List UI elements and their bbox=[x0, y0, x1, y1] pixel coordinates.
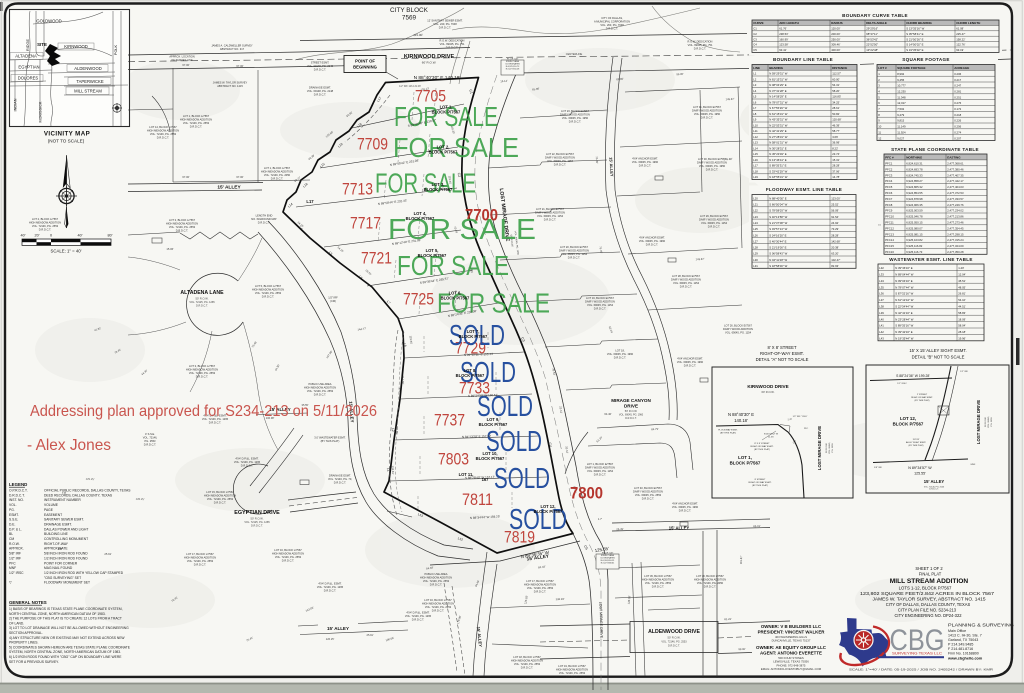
svg-text:(CM): (CM) bbox=[330, 299, 336, 303]
svg-text:RIDGE: RIDGE bbox=[26, 39, 30, 51]
svg-text:BLOCK P/7567: BLOCK P/7567 bbox=[429, 150, 458, 155]
svg-text:11.35': 11.35' bbox=[768, 437, 774, 439]
svg-text:SHEET 1 OF 2: SHEET 1 OF 2 bbox=[915, 566, 943, 571]
svg-text:2,477,213.86: 2,477,213.86 bbox=[947, 215, 964, 219]
svg-text:VOL.: VOL. bbox=[9, 503, 17, 507]
svg-text:LOT 31, BLOCK E/7567: LOT 31, BLOCK E/7567 bbox=[693, 105, 721, 109]
svg-text:S 88°24'36" W 199.28': S 88°24'36" W 199.28' bbox=[896, 374, 930, 378]
svg-text:PFC10: PFC10 bbox=[885, 215, 894, 219]
svg-text:PFC14: PFC14 bbox=[885, 238, 894, 242]
svg-text:11,149: 11,149 bbox=[897, 125, 906, 129]
svg-text:50' R.O.W.: 50' R.O.W. bbox=[668, 636, 681, 640]
svg-text:OWNER: V B BUILDERS LLC: OWNER: V B BUILDERS LLC bbox=[761, 624, 822, 629]
svg-text:HIGH MEADOW ADDITION: HIGH MEADOW ADDITION bbox=[261, 169, 293, 173]
svg-text:CENTERLINE: CENTERLINE bbox=[566, 52, 583, 56]
svg-text:BUILDING LINE: BUILDING LINE bbox=[44, 532, 69, 536]
svg-text:93.41': 93.41' bbox=[779, 48, 787, 52]
svg-text:VOL. 69045, PG. 1154: VOL. 69045, PG. 1154 bbox=[673, 281, 700, 285]
svg-text:LOT 16, BLOCK L/7567: LOT 16, BLOCK L/7567 bbox=[274, 548, 302, 552]
svg-text:VOLUME: VOLUME bbox=[44, 503, 59, 507]
svg-text:DALLAS POWER AND LIGHT: DALLAS POWER AND LIGHT bbox=[44, 527, 88, 531]
svg-text:L19: L19 bbox=[753, 175, 758, 179]
svg-text:DEED RECORDS, DALLAS COUNTY, T: DEED RECORDS, DALLAS COUNTY, TEXAS bbox=[44, 493, 113, 497]
svg-text:25.52': 25.52' bbox=[831, 203, 839, 207]
svg-text:125.55': 125.55' bbox=[914, 472, 926, 476]
svg-text:D.R.D.C.T.: D.R.D.C.T. bbox=[625, 417, 637, 420]
svg-text:AGENT: ANTONIO EVERETTE: AGENT: ANTONIO EVERETTE bbox=[760, 651, 822, 656]
svg-text:142.68': 142.68' bbox=[831, 239, 841, 243]
svg-text:CM: CM bbox=[9, 537, 14, 541]
svg-text:S 13°35'16" W: S 13°35'16" W bbox=[906, 27, 924, 31]
svg-text:58.77': 58.77' bbox=[832, 129, 840, 133]
svg-text:7800: 7800 bbox=[570, 484, 603, 503]
svg-text:2,477,442.17: 2,477,442.17 bbox=[947, 179, 964, 183]
svg-text:LOT 12,: LOT 12, bbox=[900, 416, 916, 421]
svg-text:F 214.481.8716: F 214.481.8716 bbox=[948, 647, 973, 651]
svg-text:MAG NAIL FOUND: MAG NAIL FOUND bbox=[44, 566, 73, 570]
svg-text:HIGH MEADOW ADDITION: HIGH MEADOW ADDITION bbox=[556, 667, 588, 671]
svg-text:VOL. 72146, PG. 2553: VOL. 72146, PG. 2553 bbox=[645, 581, 672, 585]
svg-text:D.R.D.C.T.: D.R.D.C.T. bbox=[176, 228, 189, 232]
svg-text:ALTADENA: ALTADENA bbox=[15, 54, 37, 59]
svg-text:99.00': 99.00' bbox=[738, 647, 746, 651]
svg-text:ALTADENA LANE: ALTADENA LANE bbox=[180, 290, 224, 296]
svg-text:LINE: LINE bbox=[753, 66, 760, 70]
svg-text:www.cbghello.com: www.cbghello.com bbox=[947, 657, 983, 661]
svg-text:OF SURVEY LINE: OF SURVEY LINE bbox=[171, 58, 193, 62]
svg-text:8.22': 8.22' bbox=[832, 146, 838, 150]
svg-text:D.R.D.C.T.: D.R.D.C.T. bbox=[334, 481, 347, 485]
svg-text:D.E.: D.E. bbox=[9, 522, 15, 526]
svg-text:D.R.D.C.T.: D.R.D.C.T. bbox=[554, 162, 567, 166]
svg-text:BLOCK P/7567: BLOCK P/7567 bbox=[534, 509, 563, 514]
svg-text:LOT 3, BLOCK L/7567: LOT 3, BLOCK L/7567 bbox=[169, 218, 196, 222]
svg-text:58.20': 58.20' bbox=[832, 89, 840, 93]
svg-text:PFC11: PFC11 bbox=[885, 221, 894, 225]
svg-text:D.R.D.C.T.: D.R.D.C.T. bbox=[652, 584, 665, 588]
svg-text:85.01': 85.01' bbox=[753, 524, 761, 528]
svg-text:PFC: PFC bbox=[9, 561, 16, 565]
svg-text:DRAINAGE ESMT.: DRAINAGE ESMT. bbox=[44, 522, 72, 526]
svg-text:D.R.D.C.T.: D.R.D.C.T. bbox=[679, 509, 692, 513]
svg-text:VOL. 72146, PG. 1265: VOL. 72146, PG. 1265 bbox=[234, 460, 261, 464]
svg-text:123,802 SQUARE FEET/2.842 ACRE: 123,802 SQUARE FEET/2.842 ACRES IN BLOCK… bbox=[860, 591, 995, 596]
svg-text:D.R.D.C.T.: D.R.D.C.T. bbox=[594, 472, 607, 476]
svg-text:25.91': 25.91' bbox=[104, 552, 112, 556]
svg-text:9,027: 9,027 bbox=[897, 136, 904, 140]
svg-text:L6: L6 bbox=[753, 100, 757, 104]
svg-text:L34: L34 bbox=[879, 279, 884, 283]
svg-text:APPROX.: APPROX. bbox=[9, 547, 24, 551]
svg-text:VOL. 72146,: VOL. 72146, bbox=[143, 435, 158, 439]
svg-text:60' R.O.W.: 60' R.O.W. bbox=[762, 390, 775, 394]
svg-text:2,477,407.35: 2,477,407.35 bbox=[947, 173, 964, 177]
svg-text:HIGH MEADOW ADDITION: HIGH MEADOW ADDITION bbox=[420, 575, 452, 579]
svg-text:L17: L17 bbox=[306, 199, 314, 204]
svg-text:6,924,865.32: 6,924,865.32 bbox=[906, 185, 923, 189]
svg-text:2,477,368.61: 2,477,368.61 bbox=[947, 162, 964, 166]
svg-text:CITY OF DALLAS, DALLAS COUNTY,: CITY OF DALLAS, DALLAS COUNTY, TEXAS bbox=[886, 602, 971, 607]
svg-text:BLOCK P/7567: BLOCK P/7567 bbox=[479, 422, 508, 427]
svg-text:140.18': 140.18' bbox=[734, 418, 748, 423]
svg-text:29°29'16": 29°29'16" bbox=[866, 27, 878, 31]
svg-text:2,477,249.76: 2,477,249.76 bbox=[947, 203, 964, 207]
svg-text:D.R.D.C.T.: D.R.D.C.T. bbox=[544, 217, 557, 221]
svg-text:L2: L2 bbox=[391, 428, 395, 432]
svg-text:DAIRY WOOD ADDITION: DAIRY WOOD ADDITION bbox=[585, 465, 615, 469]
svg-text:DISTANCE: DISTANCE bbox=[832, 66, 847, 70]
svg-text:LOT 1, BLOCK L/7567: LOT 1, BLOCK L/7567 bbox=[264, 166, 291, 170]
svg-text:S 40°13'58" W: S 40°13'58" W bbox=[769, 215, 787, 219]
svg-text:EASEMENT: EASEMENT bbox=[44, 513, 62, 517]
svg-text:6,925,103.82: 6,925,103.82 bbox=[906, 238, 923, 242]
svg-text:4'X4' D.P.&L. ESMT.: 4'X4' D.P.&L. ESMT. bbox=[318, 582, 342, 586]
svg-text:160.99': 160.99' bbox=[779, 37, 789, 41]
svg-text:DRAINAGE ESMT.: DRAINAGE ESMT. bbox=[309, 86, 331, 90]
svg-text:225.47': 225.47' bbox=[956, 32, 966, 36]
svg-text:0.274: 0.274 bbox=[954, 130, 961, 134]
svg-text:7717: 7717 bbox=[350, 214, 381, 233]
svg-text:DRAINAGE ESMT.: DRAINAGE ESMT. bbox=[329, 474, 351, 478]
svg-text:N 78°07'44" W: N 78°07'44" W bbox=[895, 285, 914, 289]
svg-text:VOL. 69045, PG. 1960: VOL. 69045, PG. 1960 bbox=[632, 160, 659, 164]
svg-text:11,348: 11,348 bbox=[897, 95, 906, 99]
svg-text:HIGH MEADOW ADDITION: HIGH MEADOW ADDITION bbox=[147, 128, 179, 132]
svg-text:ABSTRACT NO. 1415: ABSTRACT NO. 1415 bbox=[217, 84, 243, 88]
svg-text:N 42°41'16" E: N 42°41'16" E bbox=[895, 311, 913, 315]
svg-text:HIGH MEADOW ADDITION: HIGH MEADOW ADDITION bbox=[204, 493, 236, 497]
svg-text:LOT 15, BLOCK L/7567: LOT 15, BLOCK L/7567 bbox=[206, 490, 234, 494]
svg-text:FINAL PLAT: FINAL PLAT bbox=[919, 572, 942, 577]
svg-text:D.R.D.C.T.: D.R.D.C.T. bbox=[439, 26, 452, 30]
svg-text:119.85': 119.85' bbox=[409, 335, 414, 344]
svg-text:1/2" IRF: 1/2" IRF bbox=[328, 295, 338, 299]
svg-text:11: 11 bbox=[878, 130, 881, 134]
svg-text:PRESIDENT: VINCENT WALKER: PRESIDENT: VINCENT WALKER bbox=[758, 630, 826, 635]
svg-text:D.R.D.C.T.: D.R.D.C.T. bbox=[209, 421, 222, 425]
svg-text:D.R.D.C.T.: D.R.D.C.T. bbox=[446, 46, 459, 50]
svg-text:6,924,610.31: 6,924,610.31 bbox=[906, 162, 923, 166]
svg-text:40': 40' bbox=[21, 234, 26, 238]
svg-text:200.00': 200.00' bbox=[831, 32, 841, 36]
svg-text:PG.: PG. bbox=[9, 508, 15, 512]
svg-text:250.00': 250.00' bbox=[831, 37, 841, 41]
svg-text:D.R.D.C.T.: D.R.D.C.T. bbox=[684, 364, 697, 368]
svg-text:PUBLIC USE AREA: PUBLIC USE AREA bbox=[424, 572, 447, 576]
svg-text:D.R.D.C.T.: D.R.D.C.T. bbox=[196, 305, 208, 308]
svg-text:LOT 28, BLOCK E/7567: LOT 28, BLOCK E/7567 bbox=[672, 274, 700, 278]
svg-text:MNF: MNF bbox=[9, 566, 16, 570]
svg-text:EGYPTIAN DRIVE: EGYPTIAN DRIVE bbox=[234, 510, 280, 516]
svg-text:VOL. 69045, PG. 1154: VOL. 69045, PG. 1154 bbox=[561, 252, 588, 256]
svg-text:L11: L11 bbox=[753, 129, 758, 133]
svg-text:ALDENWOOD: ALDENWOOD bbox=[74, 66, 101, 71]
svg-text:1.7': 1.7' bbox=[598, 517, 603, 521]
svg-text:LOT 23, BLOCK E/7567: LOT 23, BLOCK E/7567 bbox=[561, 109, 589, 113]
svg-text:VOL. 72146, PG. 2553: VOL. 72146, PG. 2553 bbox=[183, 121, 210, 125]
svg-text:C1: C1 bbox=[753, 27, 757, 31]
svg-text:LOT 1, BLOCK E/7567: LOT 1, BLOCK E/7567 bbox=[587, 462, 614, 466]
svg-text:LENGTH END: LENGTH END bbox=[256, 214, 273, 218]
svg-text:JAMES A. CALDWELLER SURVEY: JAMES A. CALDWELLER SURVEY bbox=[211, 43, 253, 47]
svg-text:D.R.D.C.T.: D.R.D.C.T. bbox=[314, 68, 327, 72]
svg-text:N 58°01'31" W: N 58°01'31" W bbox=[769, 141, 788, 145]
svg-text:1) BASIS OF BEARINGS IS TEXAS: 1) BASIS OF BEARINGS IS TEXAS STATE PLAN… bbox=[9, 607, 123, 611]
svg-text:PFC15: PFC15 bbox=[885, 244, 894, 248]
svg-text:PFC12: PFC12 bbox=[885, 226, 894, 230]
svg-text:L31: L31 bbox=[753, 264, 758, 268]
svg-text:L1: L1 bbox=[753, 72, 757, 76]
svg-text:JAMES W. TAYLOR SURVEY: JAMES W. TAYLOR SURVEY bbox=[213, 80, 248, 84]
svg-text:LOT 45, BLOCK L/7567: LOT 45, BLOCK L/7567 bbox=[644, 574, 672, 578]
svg-text:LOT 18,: LOT 18, bbox=[615, 349, 625, 353]
svg-text:HIGH MEADOW ADDITION: HIGH MEADOW ADDITION bbox=[422, 601, 454, 605]
svg-text:10: 10 bbox=[878, 125, 882, 129]
svg-text:1/2" IRF "CBG": 1/2" IRF "CBG" bbox=[793, 416, 808, 418]
svg-text:SANITARY SEWER ESMT.: SANITARY SEWER ESMT. bbox=[44, 518, 84, 522]
svg-text:N 88°40'30" E: N 88°40'30" E bbox=[769, 196, 787, 200]
svg-text:ARC LENGTH: ARC LENGTH bbox=[779, 21, 799, 25]
svg-text:L15: L15 bbox=[753, 152, 758, 156]
svg-text:D.R.D.C.T.: D.R.D.C.T. bbox=[282, 558, 295, 562]
svg-text:S 05°58'41" E: S 05°58'41" E bbox=[906, 32, 923, 36]
svg-text:NORTHING: NORTHING bbox=[906, 156, 923, 160]
svg-text:PG. 1950: PG. 1950 bbox=[991, 417, 993, 427]
svg-text:S 40°30'44" E: S 40°30'44" E bbox=[769, 239, 786, 243]
svg-text:81.22': 81.22' bbox=[724, 617, 732, 621]
svg-text:S 89°35'31" E: S 89°35'31" E bbox=[769, 164, 786, 168]
svg-text:5/8 INCH IRON ROD FOUND: 5/8 INCH IRON ROD FOUND bbox=[44, 552, 88, 556]
svg-text:50' R.O.W.: 50' R.O.W. bbox=[625, 409, 638, 413]
svg-text:R.O.W.: R.O.W. bbox=[9, 542, 20, 546]
svg-text:6,924,858.27: 6,924,858.27 bbox=[906, 179, 923, 183]
svg-text:L12: L12 bbox=[753, 135, 758, 139]
svg-text:DOLORES: DOLORES bbox=[18, 76, 39, 81]
svg-text:DAIRY WOOD ADDITION: DAIRY WOOD ADDITION bbox=[633, 489, 663, 493]
svg-text:D.R.D.C.T.: D.R.D.C.T. bbox=[694, 47, 707, 51]
svg-text:S 78°58'03" W: S 78°58'03" W bbox=[769, 209, 787, 213]
svg-text:2,477,350.28: 2,477,350.28 bbox=[947, 250, 964, 254]
svg-text:STREET ESMT.: STREET ESMT. bbox=[311, 61, 330, 65]
svg-text:OWNER: AE EQUITY GROUP LLC: OWNER: AE EQUITY GROUP LLC bbox=[756, 645, 827, 650]
svg-text:15.06': 15.06' bbox=[166, 247, 174, 251]
svg-text:C4: C4 bbox=[548, 442, 553, 447]
svg-text:14.78': 14.78' bbox=[832, 175, 840, 179]
svg-text:115.87': 115.87' bbox=[739, 555, 743, 564]
svg-text:N 19°35'44" W: N 19°35'44" W bbox=[895, 337, 914, 341]
svg-text:OFFICIAL PUBLIC RECORDS, DALLA: OFFICIAL PUBLIC RECORDS, DALLAS COUNTY, … bbox=[44, 489, 131, 493]
svg-text:158.22': 158.22' bbox=[956, 37, 966, 41]
svg-text:ALLEY SIGHT ESMT.: ALLEY SIGHT ESMT. bbox=[906, 441, 926, 444]
svg-text:28.28': 28.28' bbox=[831, 233, 839, 237]
svg-text:67.00': 67.00' bbox=[182, 63, 190, 67]
svg-text:LOT 18, BLOCK L/7567: LOT 18, BLOCK L/7567 bbox=[513, 655, 541, 659]
svg-text:50' R.O.W.: 50' R.O.W. bbox=[826, 443, 828, 453]
svg-text:67.00': 67.00' bbox=[236, 175, 244, 179]
svg-text:N 18°55'31" W: N 18°55'31" W bbox=[769, 175, 788, 179]
svg-text:C4: C4 bbox=[753, 43, 757, 47]
svg-text:S 22°34'44" W: S 22°34'44" W bbox=[895, 305, 913, 309]
svg-text:LOT 20, BLOCK E/7567: LOT 20, BLOCK E/7567 bbox=[560, 245, 588, 249]
svg-text:7803: 7803 bbox=[438, 450, 469, 469]
svg-text:D.R.D.C.T.: D.R.D.C.T. bbox=[258, 221, 271, 225]
svg-text:7,502: 7,502 bbox=[897, 107, 904, 111]
svg-text:7709: 7709 bbox=[357, 135, 388, 154]
svg-text:VOL. 69045,: VOL. 69045, bbox=[829, 442, 831, 454]
svg-text:LOT 14, BLOCK L/7567: LOT 14, BLOCK L/7567 bbox=[149, 125, 177, 129]
svg-text:LOT 19, BLOCK E/7567: LOT 19, BLOCK E/7567 bbox=[586, 296, 614, 300]
svg-text:LOT 17, BLOCK L/7567: LOT 17, BLOCK L/7567 bbox=[526, 579, 554, 583]
svg-text:LOT 30, BLOCK E/7567: LOT 30, BLOCK E/7567 bbox=[698, 157, 726, 161]
svg-text:VOL. 69045, PG. 1154: VOL. 69045, PG. 1154 bbox=[537, 214, 564, 218]
svg-text:24.92': 24.92' bbox=[831, 221, 839, 225]
svg-text:50.82': 50.82' bbox=[832, 112, 840, 116]
svg-text:6,924,878.98: 6,924,878.98 bbox=[906, 197, 923, 201]
svg-text:0.256: 0.256 bbox=[954, 125, 961, 129]
svg-text:VOL. 69045, PG. 1950: VOL. 69045, PG. 1950 bbox=[699, 164, 726, 168]
svg-text:15' ALLEY: 15' ALLEY bbox=[217, 185, 241, 191]
svg-text:DETAIL "A" NOT TO SCALE: DETAIL "A" NOT TO SCALE bbox=[756, 357, 809, 362]
svg-text:PAGE: PAGE bbox=[44, 508, 54, 512]
svg-text:FOR SALE: FOR SALE bbox=[393, 132, 519, 163]
svg-text:19.96': 19.96' bbox=[958, 337, 966, 341]
svg-text:23.74': 23.74' bbox=[832, 152, 840, 156]
svg-text:L41: L41 bbox=[879, 324, 884, 328]
svg-text:0.251: 0.251 bbox=[954, 95, 961, 99]
svg-text:D.R.D.C.T.: D.R.D.C.T. bbox=[271, 176, 284, 180]
svg-text:50' R.O.W.: 50' R.O.W. bbox=[196, 297, 209, 301]
svg-text:NO. INGROUND MAT: NO. INGROUND MAT bbox=[251, 217, 277, 221]
svg-text:0.281: 0.281 bbox=[954, 89, 961, 93]
svg-text:N 89°34'57" W: N 89°34'57" W bbox=[908, 466, 932, 470]
svg-text:6,924,693.78: 6,924,693.78 bbox=[906, 167, 923, 171]
svg-text:N 89°04'44" W: N 89°04'44" W bbox=[895, 273, 914, 277]
svg-text:LOTS 1-12, BLOCK P/7567: LOTS 1-12, BLOCK P/7567 bbox=[899, 586, 952, 591]
svg-text:D.R.D.C.T.: D.R.D.C.T. bbox=[708, 224, 721, 228]
svg-text:FLOODWAY MONUMENT SET: FLOODWAY MONUMENT SET bbox=[44, 581, 90, 585]
svg-text:0.172: 0.172 bbox=[954, 107, 961, 111]
svg-text:N 45°23'49" E: N 45°23'49" E bbox=[769, 152, 787, 156]
svg-text:15.14': 15.14' bbox=[500, 79, 508, 84]
svg-text:(BY THIS PLAT): (BY THIS PLAT) bbox=[752, 484, 768, 487]
svg-text:44.51': 44.51' bbox=[958, 305, 966, 309]
svg-text:VOL. 69148, PG. 2148: VOL. 69148, PG. 2148 bbox=[307, 89, 334, 93]
svg-text:E:2,477,350.28: E:2,477,350.28 bbox=[506, 69, 520, 71]
svg-text:DETAIL "B" NOT TO SCALE: DETAIL "B" NOT TO SCALE bbox=[912, 355, 965, 360]
svg-text:D.R.D.C.T.: D.R.D.C.T. bbox=[668, 644, 680, 647]
svg-text:S 19°35'02" E: S 19°35'02" E bbox=[906, 48, 923, 52]
svg-text:28.28': 28.28' bbox=[832, 164, 840, 168]
svg-text:D.R.D.C.T.: D.R.D.C.T. bbox=[568, 255, 581, 259]
svg-text:S 18°58'00" W: S 18°58'00" W bbox=[769, 264, 787, 268]
svg-text:65.06': 65.06' bbox=[616, 77, 624, 82]
svg-text:D.R.D.C.T.: D.R.D.C.T. bbox=[157, 135, 170, 139]
svg-text:RIGHT-OF-WAY ESMT.: RIGHT-OF-WAY ESMT. bbox=[911, 396, 933, 399]
svg-text:D.R.D.C.T.: D.R.D.C.T. bbox=[680, 284, 693, 288]
svg-text:28.18': 28.18' bbox=[958, 330, 966, 334]
svg-text:SOLD: SOLD bbox=[494, 463, 550, 495]
svg-text:VOL. 69045, PG. 1154: VOL. 69045, PG. 1154 bbox=[587, 303, 614, 307]
svg-text:D.R.D.C.T.: D.R.D.C.T. bbox=[324, 589, 337, 593]
svg-text:4'X4' ANCHOR ESMT.: 4'X4' ANCHOR ESMT. bbox=[677, 357, 703, 361]
svg-text:1.40': 1.40' bbox=[958, 266, 964, 270]
svg-text:125.25': 125.25' bbox=[86, 477, 95, 481]
svg-text:LOT #: LOT # bbox=[878, 66, 887, 70]
svg-text:112.57': 112.57' bbox=[832, 72, 841, 76]
svg-text:34.25': 34.25' bbox=[832, 100, 840, 104]
svg-text:40': 40' bbox=[78, 234, 83, 238]
svg-text:8' STREET: 8' STREET bbox=[755, 479, 767, 481]
svg-text:L42: L42 bbox=[879, 330, 884, 334]
svg-text:0.217: 0.217 bbox=[954, 78, 961, 82]
svg-text:120.68': 120.68' bbox=[832, 118, 842, 122]
svg-text:145.88': 145.88' bbox=[723, 157, 732, 161]
svg-text:N 81°15'31" W: N 81°15'31" W bbox=[769, 77, 788, 81]
svg-text:26.81': 26.81' bbox=[958, 292, 966, 296]
svg-text:2,477,372.53: 2,477,372.53 bbox=[947, 191, 964, 195]
svg-text:C2: C2 bbox=[753, 32, 757, 36]
svg-text:VOL. 72146, PG. 2050: VOL. 72146, PG. 2050 bbox=[697, 581, 724, 585]
svg-text:L7: L7 bbox=[753, 106, 757, 110]
svg-text:6,925,081.15: 6,925,081.15 bbox=[906, 232, 923, 236]
svg-text:VOL. 72146, PG. 2553: VOL. 72146, PG. 2553 bbox=[527, 586, 554, 590]
svg-text:D.R.D.C.T.: D.R.D.C.T. bbox=[190, 124, 203, 128]
svg-text:4' S.S.E.: 4' S.S.E. bbox=[145, 432, 155, 436]
svg-text:N 22°53'31" W: N 22°53'31" W bbox=[769, 123, 788, 127]
svg-text:DAIRY WOOD ADDITION: DAIRY WOOD ADDITION bbox=[559, 248, 589, 252]
svg-text:PFC7: PFC7 bbox=[885, 197, 893, 201]
svg-text:TAPERWICKE: TAPERWICKE bbox=[76, 79, 104, 84]
svg-text:VOL. 72146, PG. 2553: VOL. 72146, PG. 2553 bbox=[275, 555, 302, 559]
svg-text:D.R.D.C.T.: D.R.D.C.T. bbox=[144, 442, 157, 446]
svg-text:SYSTEM, NORTH CENTRAL ZONE, NO: SYSTEM, NORTH CENTRAL ZONE, NORTH AMERIC… bbox=[9, 650, 121, 654]
svg-text:5/8" IRF: 5/8" IRF bbox=[9, 552, 21, 556]
svg-text:MNF: MNF bbox=[971, 464, 976, 466]
svg-text:0.247: 0.247 bbox=[954, 84, 961, 88]
svg-text:BLOCK P/7567: BLOCK P/7567 bbox=[441, 296, 470, 301]
svg-text:L30: L30 bbox=[753, 258, 758, 262]
svg-text:CHORD BEARING: CHORD BEARING bbox=[906, 21, 932, 25]
svg-text:JAMES W. TAYLOR SURVEY, ABSTRA: JAMES W. TAYLOR SURVEY, ABSTRACT NO. 141… bbox=[873, 597, 987, 602]
svg-text:ABSTRACT NO. 317: ABSTRACT NO. 317 bbox=[220, 47, 245, 51]
svg-text:4'X4' ANCHOR ESMT.: 4'X4' ANCHOR ESMT. bbox=[672, 502, 698, 506]
svg-text:6,925,080.07: 6,925,080.07 bbox=[906, 226, 923, 230]
svg-text:15.31': 15.31' bbox=[832, 158, 840, 162]
svg-text:D.R.D.C.T.: D.R.D.C.T. bbox=[614, 356, 627, 360]
svg-text:120.00': 120.00' bbox=[831, 27, 841, 31]
svg-text:S 24°16'20" E: S 24°16'20" E bbox=[769, 233, 786, 237]
svg-text:12,230: 12,230 bbox=[897, 89, 906, 93]
svg-text:DUNCANVILLE, TEXAS 75137: DUNCANVILLE, TEXAS 75137 bbox=[772, 639, 811, 643]
svg-text:VOL. 69045, PG. 2553: VOL. 69045, PG. 2553 bbox=[635, 493, 662, 497]
svg-text:D.R.D.C.T.: D.R.D.C.T. bbox=[569, 119, 582, 123]
svg-text:6,924,745.33: 6,924,745.33 bbox=[906, 173, 923, 177]
svg-text:L28: L28 bbox=[753, 246, 758, 250]
svg-text:0: 0 bbox=[50, 234, 52, 238]
svg-text:N 61°12'44" W: N 61°12'44" W bbox=[895, 298, 914, 302]
svg-text:2) THE PURPOSE OF THIS PLAT IS: 2) THE PURPOSE OF THIS PLAT IS TO CREATE… bbox=[9, 617, 122, 621]
svg-text:KIRNWOOD DRIVE: KIRNWOOD DRIVE bbox=[404, 54, 455, 60]
svg-text:VOL. 72146, PG. 1265: VOL. 72146, PG. 1265 bbox=[405, 614, 432, 618]
svg-text:L4: L4 bbox=[753, 89, 757, 93]
svg-text:6,924,966.35: 6,924,966.35 bbox=[906, 203, 923, 207]
svg-text:L8: L8 bbox=[753, 112, 757, 116]
svg-text:214.36': 214.36' bbox=[401, 375, 405, 384]
svg-text:PROPERTY LINES.: PROPERTY LINES. bbox=[9, 641, 38, 645]
svg-text:L17: L17 bbox=[753, 164, 758, 168]
svg-text:7713: 7713 bbox=[342, 180, 373, 199]
svg-text:238.53': 238.53' bbox=[779, 32, 789, 36]
